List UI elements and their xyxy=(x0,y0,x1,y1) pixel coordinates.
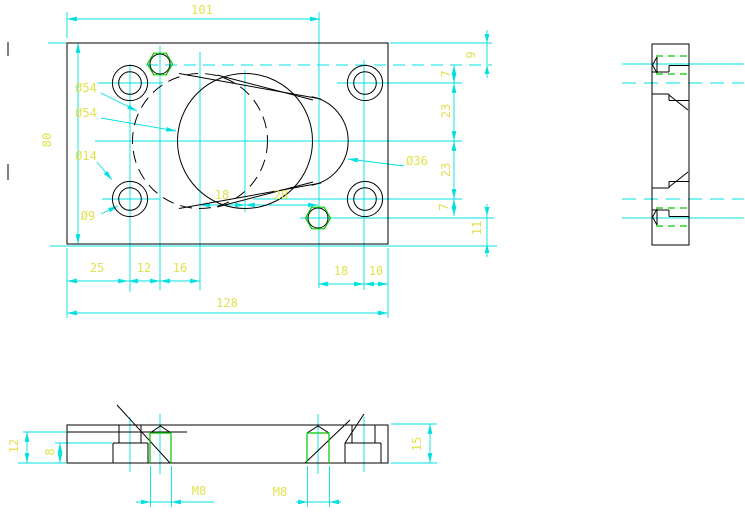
dim-chain-bottom-right-2: 10 xyxy=(369,265,383,277)
dia-label-hole-inner: Ø9 xyxy=(81,210,95,222)
dim-right-bottom: 11 xyxy=(471,221,483,235)
dia-label-boss: Ø36 xyxy=(406,155,428,167)
dim-chain-bottom-2: 12 xyxy=(137,262,151,274)
dia-label-counterbore-2: Ø54 xyxy=(75,107,97,119)
centerlines-and-extension-lines xyxy=(18,12,744,507)
dim-chain-right-2: 23 xyxy=(440,104,452,118)
dim-chain-right-1: 7 xyxy=(440,70,452,77)
dim-plate-thickness: 15 xyxy=(411,437,423,451)
dim-total-width: 128 xyxy=(216,297,238,309)
thread-label-left: M8 xyxy=(192,485,206,497)
dim-chain-bottom-right-1: 18 xyxy=(334,265,348,277)
dim-top-width: 101 xyxy=(191,4,213,16)
outside-arrowheads xyxy=(141,34,489,504)
bottom-view-geometry xyxy=(67,405,388,463)
dim-chain-bottom-1: 25 xyxy=(90,262,104,274)
dia-label-hole-outer: Ø14 xyxy=(75,150,97,162)
dim-chain-right-4: 7 xyxy=(438,203,450,210)
dim-chain-right-3: 23 xyxy=(440,163,452,177)
dim-chain-bottom-3: 16 xyxy=(173,262,187,274)
thread-label-right: M8 xyxy=(273,486,287,498)
dim-thread-depth: 12 xyxy=(8,439,20,453)
dim-counterbore-depth: 8 xyxy=(44,448,56,455)
dia-label-counterbore-1: Ø54 xyxy=(75,82,97,94)
dim-chain-middle-1: 18 xyxy=(215,189,229,201)
cad-drawing-canvas[interactable]: 101 80 Ø54 Ø54 Ø14 Ø9 Ø36 18 28 25 12 16… xyxy=(0,0,745,520)
dim-chain-middle-2: 28 xyxy=(274,189,288,201)
front-view-geometry xyxy=(8,42,388,244)
drawing-geometry xyxy=(0,0,745,520)
thread-representation xyxy=(148,53,690,463)
dim-right-top: 9 xyxy=(465,51,477,58)
dim-left-height: 80 xyxy=(41,133,53,147)
